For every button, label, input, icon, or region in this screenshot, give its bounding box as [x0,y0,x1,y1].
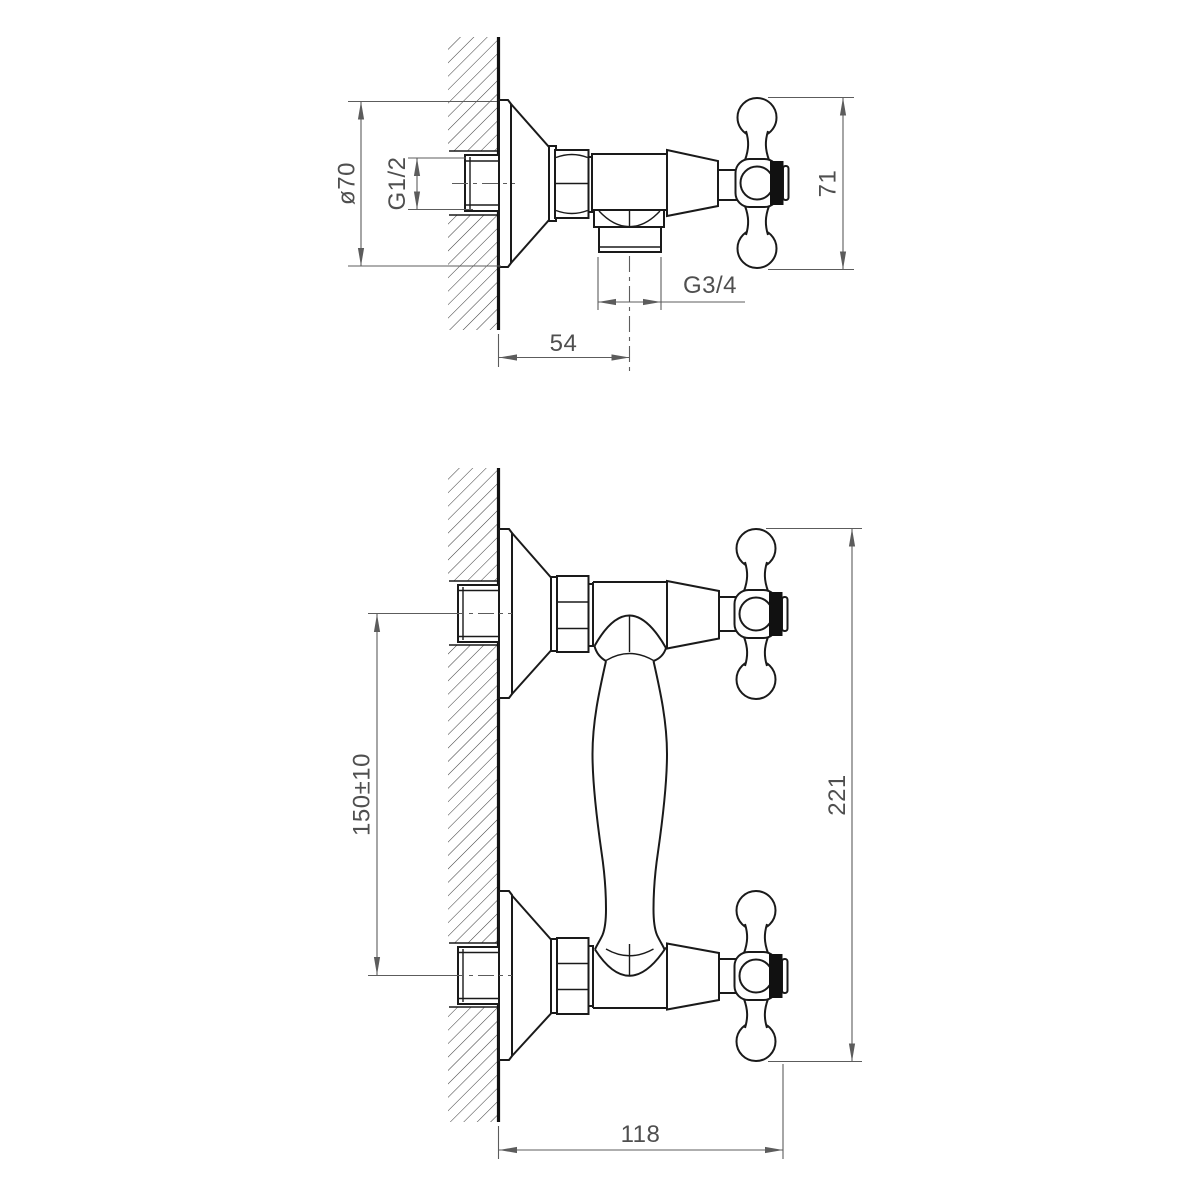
technical-drawing: ø70 G1/2 71 G3/4 [0,0,1200,1200]
valve-stem [718,170,737,200]
dim-label: G1/2 [384,156,411,210]
lower-bonnet-cone [667,944,719,1010]
dim-label: 71 [815,170,842,198]
dim-label: 54 [550,330,578,357]
wall-hatch [448,37,497,151]
dim-label: ø70 [334,162,361,205]
dim-label: 118 [621,1121,661,1148]
valve-body [592,154,667,210]
upper-bonnet-cone [667,581,719,649]
handle-bottom-lobe [738,229,777,268]
handle-top-lobe [738,98,777,137]
handle-cap [769,592,783,636]
handle-cap [770,161,784,205]
handle-bottom-lobe [737,660,776,699]
dim-label: 150±10 [349,753,376,836]
hex-nut [555,150,593,218]
wall-hatch [448,645,497,943]
handle-bottom-lobe [737,1022,776,1061]
dim-label: 221 [824,774,851,816]
handle-cap [769,954,783,998]
upper-hex-nut [557,576,593,652]
drawing-canvas: ø70 G1/2 71 G3/4 [0,0,1200,1200]
wall-hatch [448,468,497,581]
handle-cap-rim [782,959,788,993]
outlet-port [594,210,664,252]
dim-label: G3/4 [683,272,737,299]
handle-top-lobe [737,529,776,568]
lower-hex-nut [557,938,593,1014]
handle-cap-rim [782,597,788,631]
wall-section [448,468,499,1122]
wall-hatch [448,1007,497,1122]
bonnet-cone [667,150,718,216]
handle-top-lobe [737,891,776,930]
handle-cap-rim [783,166,789,200]
wall-hatch [448,215,497,330]
